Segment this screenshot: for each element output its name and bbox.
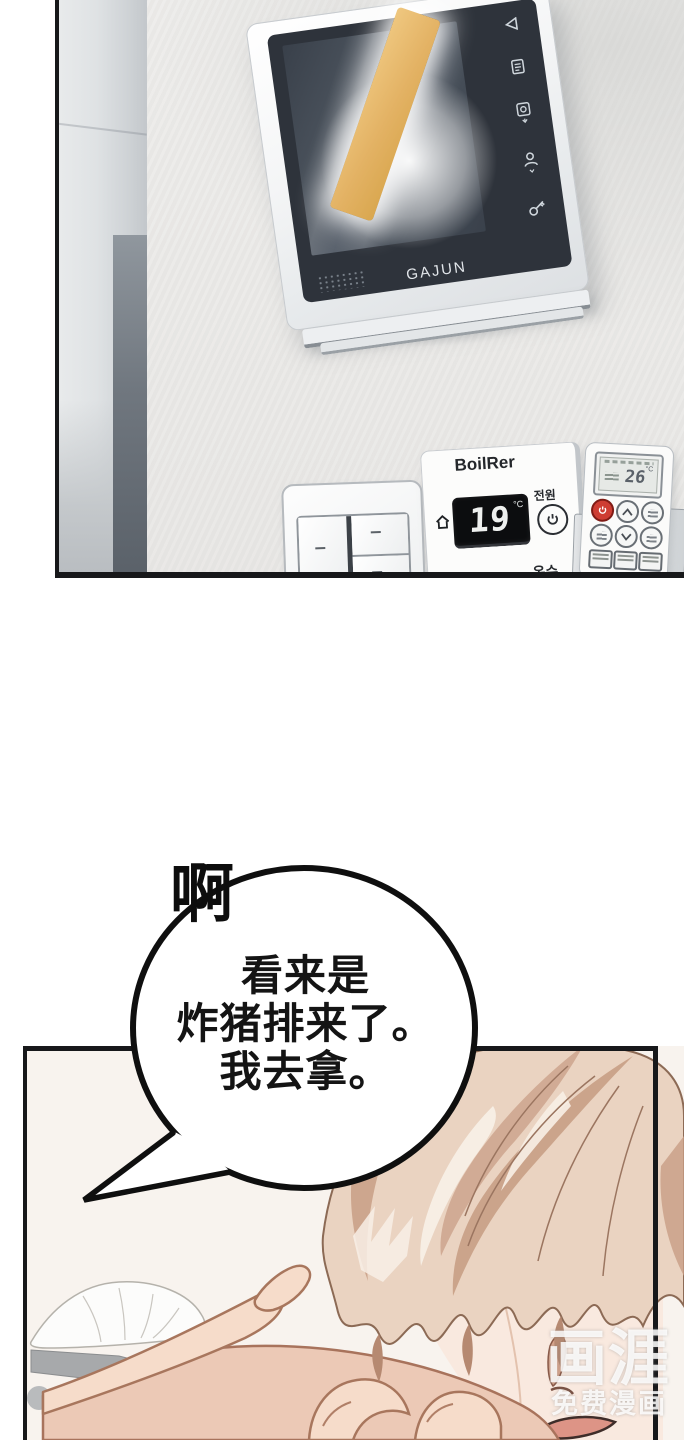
rocker-indicator bbox=[315, 547, 325, 549]
remote-side-button bbox=[639, 526, 663, 550]
power-icon bbox=[598, 506, 607, 515]
chevron-up-icon bbox=[622, 507, 633, 516]
illegible-label-marks bbox=[596, 531, 606, 540]
visitor-icon bbox=[520, 150, 541, 174]
video-intercom: GAJUN bbox=[245, 0, 590, 332]
panel-border bbox=[55, 0, 59, 578]
remote-function-button bbox=[588, 549, 613, 569]
intercom-bezel: GAJUN bbox=[267, 0, 573, 303]
air-conditioner-remote: 26 °C bbox=[579, 442, 675, 578]
panel-top-wall-scene: GAJUN BoilRer 19 bbox=[55, 0, 684, 578]
light-switch-plate bbox=[281, 480, 426, 578]
remote-lcd: 26 °C bbox=[593, 451, 664, 499]
boiler-temperature: 19 bbox=[469, 499, 512, 541]
remote-function-button bbox=[613, 550, 638, 570]
home-icon bbox=[435, 514, 451, 535]
boiler-power-button bbox=[536, 503, 569, 536]
boiler-display: 19 °C bbox=[452, 494, 531, 550]
remote-temperature: 26 bbox=[623, 467, 646, 488]
illegible-label-marks bbox=[646, 534, 656, 543]
boiler-temp-unit: °C bbox=[513, 499, 524, 510]
wall-pillar bbox=[55, 0, 147, 578]
panel-border bbox=[23, 1046, 27, 1440]
power-icon bbox=[546, 513, 560, 527]
boiler-title: BoilRer bbox=[421, 450, 548, 478]
remote-side-button bbox=[640, 501, 664, 525]
watermark-tagline: 免费漫画 bbox=[551, 1382, 667, 1421]
lcd-side-marks bbox=[605, 472, 619, 481]
remote-side-button bbox=[589, 523, 613, 547]
boiler-power-label: 전원 bbox=[533, 486, 556, 504]
light-switch-rockers bbox=[296, 512, 412, 578]
key-icon bbox=[526, 199, 548, 220]
thumb bbox=[255, 1266, 310, 1311]
back-triangle-icon bbox=[504, 17, 520, 32]
pillar-mid-shade bbox=[55, 400, 113, 578]
remote-function-button bbox=[638, 552, 663, 572]
comic-page: GAJUN BoilRer 19 bbox=[0, 0, 684, 1440]
door-release-icon bbox=[513, 101, 535, 125]
panel-border bbox=[55, 572, 684, 578]
illegible-label-marks bbox=[647, 509, 657, 518]
memo-icon bbox=[508, 57, 527, 76]
switch-rocker-top-right bbox=[351, 514, 408, 557]
speech-line: 看来是 bbox=[158, 952, 453, 1000]
chevron-down-icon bbox=[621, 532, 632, 541]
speech-line: 炸猪排来了。 bbox=[158, 1000, 453, 1048]
boiler-controller: BoilRer 19 °C 전원 난방 온수 bbox=[420, 441, 588, 578]
speech-line: 我去拿。 bbox=[158, 1048, 453, 1096]
sfx-text: 啊 bbox=[170, 843, 232, 935]
speech-text: 看来是 炸猪排来了。 我去拿。 bbox=[158, 952, 453, 1096]
pillar-dark-shade bbox=[113, 235, 147, 578]
remote-temp-unit: °C bbox=[645, 466, 653, 473]
switch-rocker-left bbox=[298, 516, 354, 578]
lcd-top-marks bbox=[605, 460, 654, 466]
remote-power-button bbox=[590, 498, 614, 522]
rocker-indicator bbox=[371, 531, 381, 533]
pillar-seam-line bbox=[55, 122, 147, 135]
remote-lcd-screen: 26 °C bbox=[598, 457, 659, 494]
remote-temp-down-button bbox=[614, 524, 638, 548]
remote-temp-up-button bbox=[615, 499, 639, 523]
